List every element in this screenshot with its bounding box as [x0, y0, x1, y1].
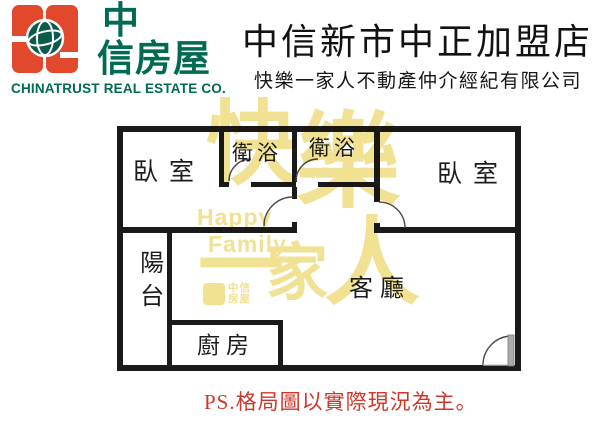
room-label-balcony: 陽台	[134, 250, 162, 316]
room-label-kitchen: 廚房	[197, 333, 255, 359]
room-label-bedroom-right: 臥室	[437, 161, 509, 190]
room-label-living-room: 客廳	[349, 276, 411, 304]
room-label-bedroom-left: 臥室	[133, 159, 205, 188]
door-swing-arcs	[229, 159, 512, 365]
real-estate-flyer: 中 信房屋 CHINATRUST REAL ESTATE CO. 中信新市中正加…	[0, 0, 600, 421]
room-label-bathroom-left: 衛浴	[232, 141, 282, 165]
disclaimer-note: PS.格局圖以實際現況為主。	[204, 386, 478, 416]
floor-plan	[0, 0, 600, 421]
room-label-bathroom-right: 衛浴	[309, 136, 359, 160]
